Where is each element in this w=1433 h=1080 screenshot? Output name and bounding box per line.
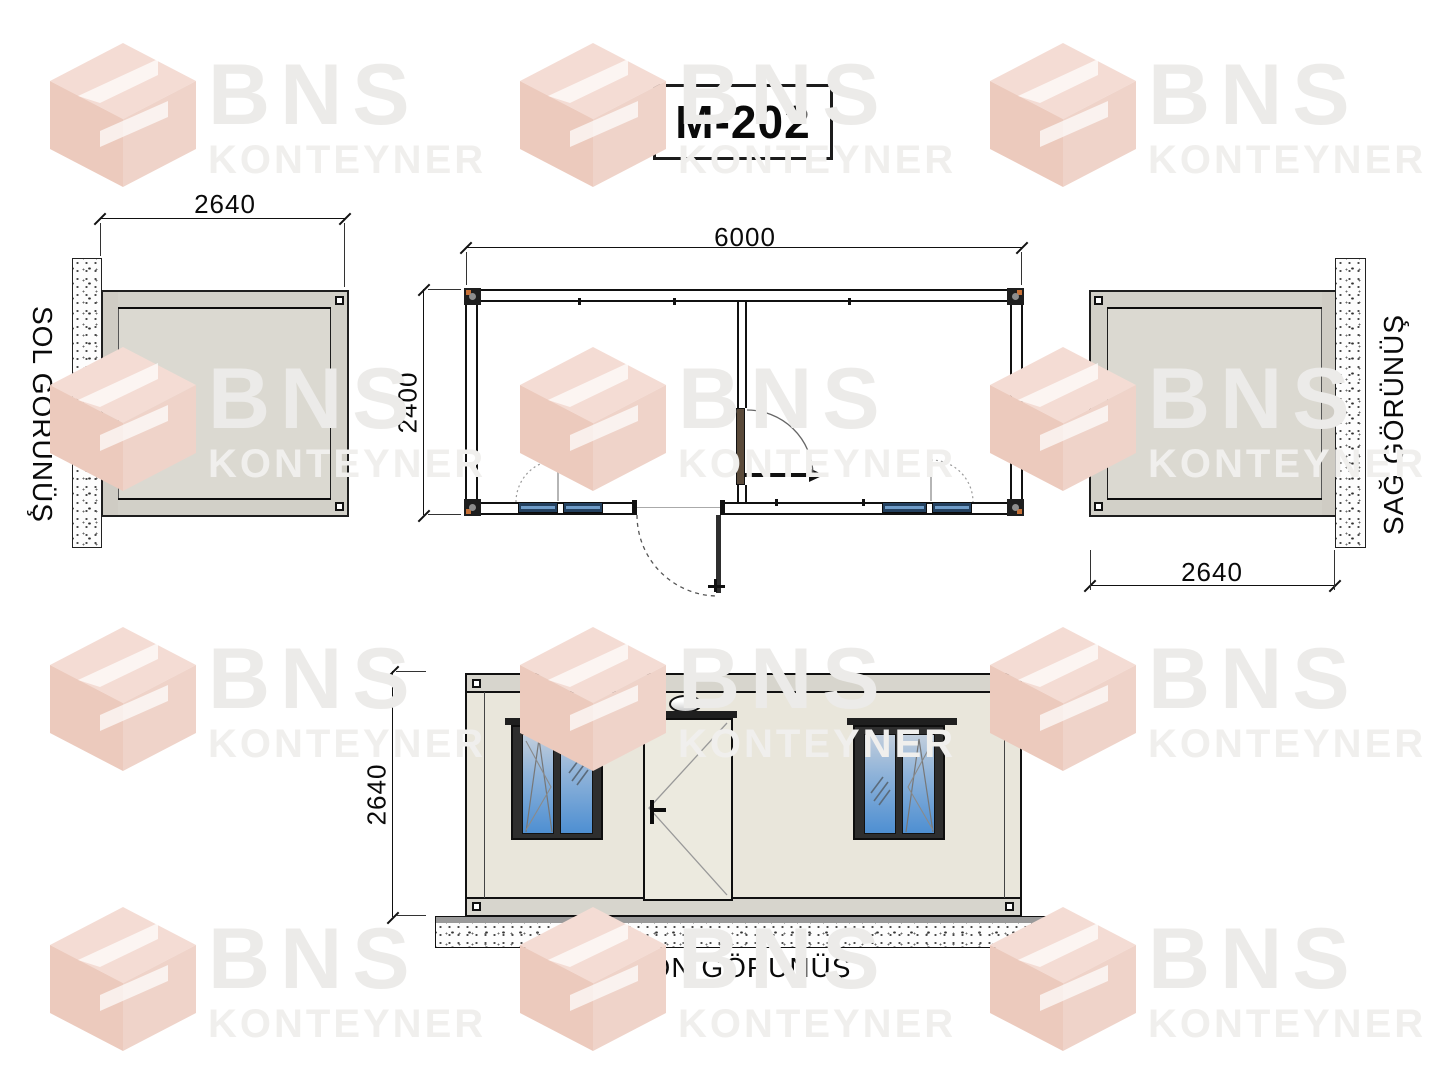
plan-depth-dim: 2400 (393, 348, 424, 458)
corner-fitting (1007, 288, 1024, 305)
ground-speckle (436, 923, 1054, 947)
dim-tick (339, 213, 352, 226)
window-cap (505, 718, 615, 725)
front-dim-line (392, 671, 393, 917)
panel-seam (775, 499, 778, 506)
technical-drawing: M-202 2640 SOL GÖRÜNÜŞ 6000 2400 (0, 0, 1433, 1080)
extension-line (466, 252, 467, 285)
corner-fitting (1007, 499, 1024, 516)
plan-window (518, 502, 558, 513)
window-pane-glass (864, 734, 896, 834)
door-cap (639, 711, 737, 718)
left-view-label: SOL GÖRÜNÜŞ (26, 288, 58, 540)
top-rail (467, 675, 1020, 693)
drawing-canvas: M-202 2640 SOL GÖRÜNÜŞ 6000 2400 (0, 0, 1433, 1080)
corner-bolt (335, 502, 344, 511)
extension-line (1334, 550, 1335, 590)
extension-line (428, 514, 461, 515)
door-handle (652, 808, 666, 812)
left-view-width-dim: 2640 (165, 189, 285, 220)
entrance-door (643, 718, 733, 901)
corner-bolt (335, 296, 344, 305)
plan-window (563, 502, 603, 513)
extension-line (428, 289, 461, 290)
window-pane-opening (522, 734, 554, 834)
corner-bolt (472, 679, 481, 688)
corner-bolt (1094, 296, 1103, 305)
corner-bolt (1005, 679, 1014, 688)
panel-seam (848, 298, 851, 305)
extension-line (1090, 550, 1091, 590)
extension-line (100, 223, 101, 256)
dim-tick (418, 510, 431, 523)
front-view-label: ÖN GÖRÜNÜŞ (600, 952, 900, 984)
front-height-dim: 2640 (362, 740, 393, 850)
corner-bolt (1005, 902, 1014, 911)
extension-line (344, 223, 345, 287)
door-handle (650, 800, 654, 824)
interior-door-swing-arrow (809, 468, 824, 482)
right-view-container (1089, 290, 1339, 517)
interior-door-leaf (736, 408, 745, 485)
door-frame-post (720, 500, 725, 515)
model-title: M-202 (675, 95, 810, 149)
right-view-dim-line (1090, 585, 1335, 586)
door-frame-post (632, 500, 637, 515)
extension-line (1021, 252, 1022, 285)
plan-dim-line (466, 247, 1022, 248)
corner-bolt (1094, 502, 1103, 511)
exterior-door-handle (714, 579, 717, 592)
window (511, 725, 603, 840)
extension-line (396, 915, 426, 916)
exterior-door-opening (635, 501, 722, 515)
top-rail (1107, 292, 1322, 309)
dim-tick (418, 284, 431, 297)
dim-tick (1329, 580, 1342, 593)
window-cap (847, 718, 957, 725)
panel-seam (578, 298, 581, 305)
corner-fitting (464, 288, 481, 305)
plan-window (882, 502, 927, 513)
bottom-rail (1107, 498, 1322, 515)
ground-hatch (435, 916, 1055, 948)
dim-tick (387, 912, 400, 925)
side-corner-rail (1091, 292, 1108, 515)
plan-window (932, 502, 972, 513)
top-rail (118, 292, 331, 309)
model-title-box: M-202 (653, 84, 833, 160)
right-view-label: SAĞ GÖRÜNÜŞ (1378, 290, 1410, 558)
right-view-width-dim: 2640 (1152, 557, 1272, 588)
panel-seam (673, 298, 676, 305)
right-view-wall-hatch (1335, 258, 1366, 548)
plan-depth-dim-line (423, 289, 424, 515)
partition-wall (737, 485, 747, 504)
bottom-rail (467, 897, 1020, 915)
left-view-dim-line (100, 218, 345, 219)
front-view (465, 673, 1022, 917)
panel-seam (862, 499, 865, 506)
window-pane-glass (560, 734, 593, 834)
left-view-container (101, 290, 349, 517)
plan-width-dim: 6000 (690, 222, 800, 253)
window (853, 725, 945, 840)
plan-view (465, 289, 1023, 515)
corner-fitting (464, 499, 481, 516)
side-panel-column (103, 292, 119, 515)
panel-seam (1004, 692, 1005, 898)
extension-line (396, 671, 426, 672)
interior-door-swing-bar (745, 473, 809, 477)
dim-tick (387, 666, 400, 679)
window-pane-opening (902, 734, 935, 834)
bottom-rail (118, 498, 331, 515)
partition-wall (737, 300, 747, 408)
dim-tick (1016, 242, 1029, 255)
side-corner-rail (330, 292, 347, 515)
panel-seam (484, 692, 485, 898)
corner-bolt (472, 902, 481, 911)
left-view-wall-hatch (72, 258, 102, 548)
